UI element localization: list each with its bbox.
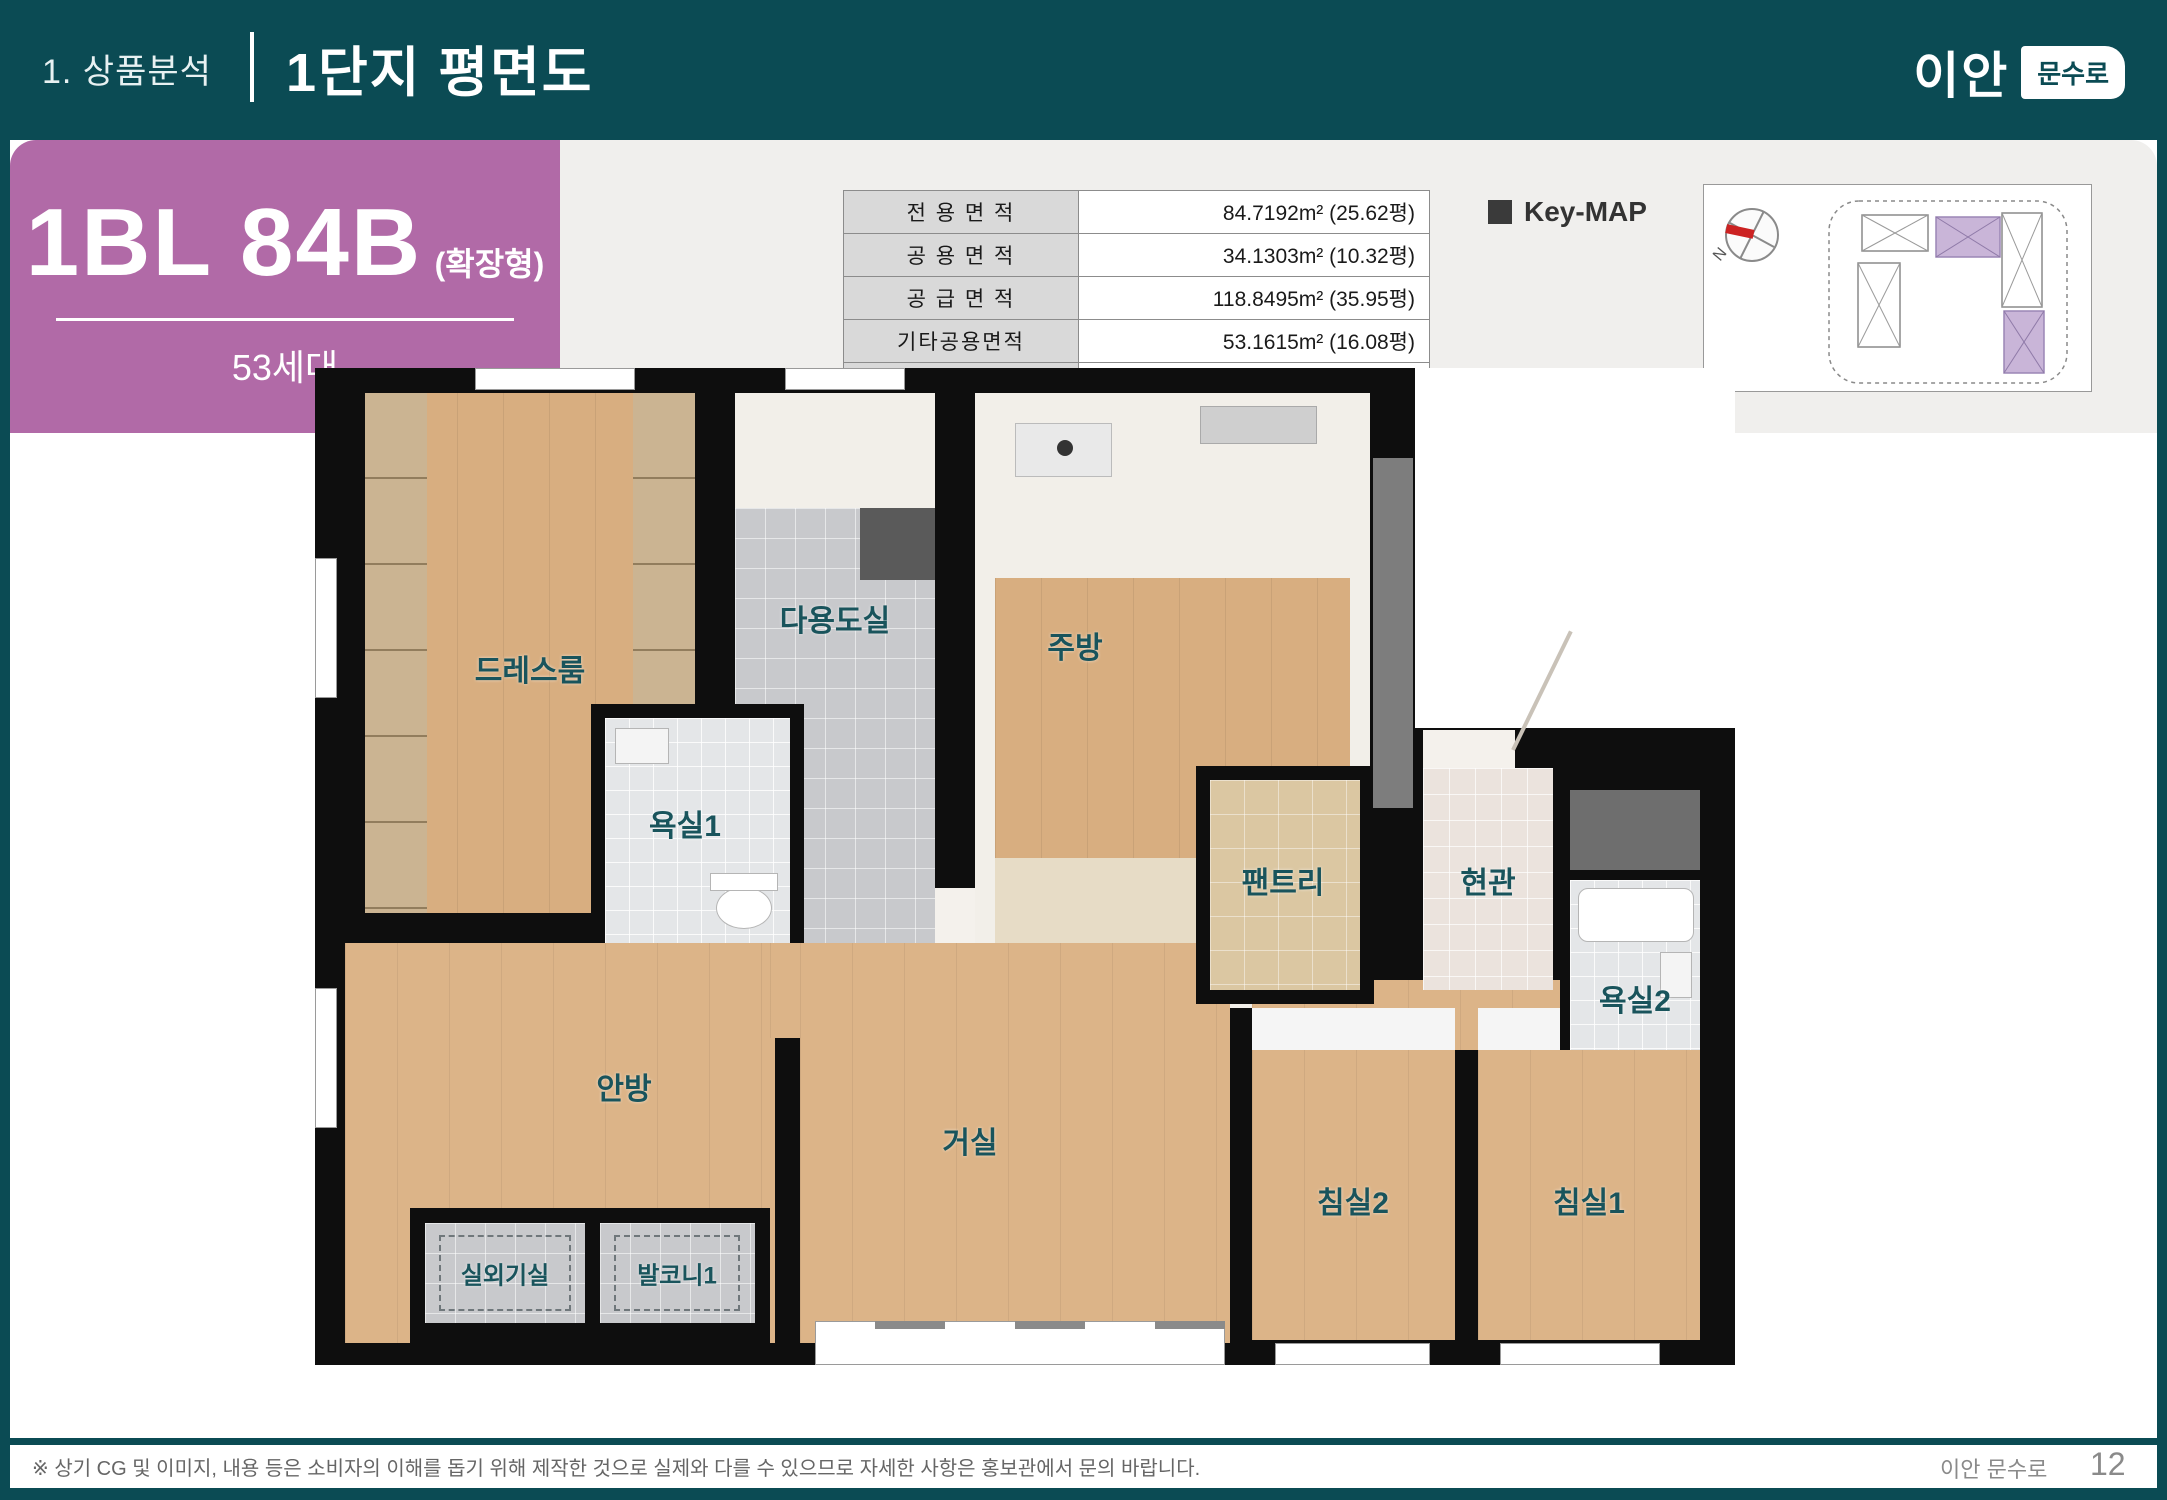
footer-project-name: 이안 문수로 xyxy=(1940,1452,2047,1484)
area-row-value: 34.1303m² (10.32평) xyxy=(1079,234,1430,277)
header-divider xyxy=(250,32,254,102)
window-mullion xyxy=(1155,1321,1225,1329)
unit-code: 1BL 84B xyxy=(26,189,422,296)
label-dressroom: 드레스룸 xyxy=(475,646,585,690)
label-bed2: 침실2 xyxy=(1317,1178,1389,1222)
section-label: 1. 상품분석 xyxy=(42,44,212,93)
window-mullion xyxy=(875,1321,945,1329)
label-bath1: 욕실1 xyxy=(649,801,721,845)
kitchen-stove xyxy=(1200,406,1317,444)
frame-right-strip xyxy=(2157,140,2167,1500)
keymap-heading: Key-MAP xyxy=(1488,196,1647,228)
frame-left-strip xyxy=(0,140,10,1500)
room-living xyxy=(800,943,1230,1343)
area-row-value: 53.1615m² (16.08평) xyxy=(1079,320,1430,363)
bed1-closet xyxy=(1478,1008,1560,1050)
table-row: 전 용 면 적 84.7192m² (25.62평) xyxy=(844,191,1430,234)
frame-bottom-strip xyxy=(0,1488,2167,1500)
label-balcony1: 발코니1 xyxy=(637,1256,717,1291)
bath1-sink xyxy=(615,728,669,764)
label-ac-room: 실외기실 xyxy=(461,1256,549,1291)
kitchen-faucet xyxy=(1057,440,1073,456)
area-row-value: 84.7192m² (25.62평) xyxy=(1079,191,1430,234)
floorplan-outside-area xyxy=(1415,368,1735,728)
table-row: 공 용 면 적 34.1303m² (10.32평) xyxy=(844,234,1430,277)
footer-disclaimer: ※ 상기 CG 및 이미지, 내용 등은 소비자의 이해를 돕기 위해 제작한 … xyxy=(32,1452,1200,1481)
bath2-tub xyxy=(1578,888,1694,942)
window-bed1 xyxy=(1500,1343,1660,1365)
label-kitchen: 주방 xyxy=(1047,623,1102,667)
window-top-1 xyxy=(475,368,635,390)
label-bath2: 욕실2 xyxy=(1599,976,1671,1020)
logo-badge: 문수로 xyxy=(2021,46,2125,99)
window-bed2 xyxy=(1275,1343,1430,1365)
slide-header: 1. 상품분석 1단지 평면도 이안 문수로 xyxy=(0,0,2167,140)
keymap-title: Key-MAP xyxy=(1524,196,1647,228)
entrance-door-gap xyxy=(1423,730,1515,770)
footer-divider-line xyxy=(10,1438,2157,1445)
unit-type-suffix: (확장형) xyxy=(435,246,545,282)
window-mullion xyxy=(1015,1321,1085,1329)
window-left-2 xyxy=(315,988,337,1128)
logo: 이안 문수로 xyxy=(1913,36,2125,108)
bath1-toilet-tank xyxy=(710,873,778,891)
bed2-closet xyxy=(1252,1008,1455,1050)
bath2-shaft xyxy=(1570,790,1700,870)
area-row-value: 118.8495m² (35.95평) xyxy=(1079,277,1430,320)
keymap-panel: N xyxy=(1703,184,2092,392)
utility-counter xyxy=(735,393,935,508)
label-living: 거실 xyxy=(942,1118,997,1162)
table-row: 기타공용면적 53.1615m² (16.08평) xyxy=(844,320,1430,363)
page-title: 1단지 평면도 xyxy=(286,28,593,107)
duct-shaft xyxy=(1373,458,1413,808)
window-left-1 xyxy=(315,558,337,698)
logo-brand: 이안 xyxy=(1913,36,2009,108)
floorplan: 드레스룸 다용도실 주방 욕실1 팬트리 현관 욕실2 안방 거실 침실2 침실… xyxy=(315,368,1735,1365)
utility-appliance xyxy=(860,508,935,580)
area-row-label: 전 용 면 적 xyxy=(844,191,1079,234)
area-row-label: 기타공용면적 xyxy=(844,320,1079,363)
unit-card-divider xyxy=(56,318,514,321)
wardrobe-left xyxy=(365,393,427,913)
label-entrance: 현관 xyxy=(1460,858,1515,902)
svg-text:N: N xyxy=(1710,245,1730,265)
label-pantry: 팬트리 xyxy=(1242,858,1325,902)
label-utility: 다용도실 xyxy=(780,596,890,640)
square-bullet-icon xyxy=(1488,200,1512,224)
compass-icon: N xyxy=(1710,209,1778,264)
label-bed1: 침실1 xyxy=(1553,1178,1625,1222)
window-top-2 xyxy=(785,368,905,390)
area-row-label: 공 용 면 적 xyxy=(844,234,1079,277)
keymap-drawing: N xyxy=(1704,185,2091,391)
table-row: 공 급 면 적 118.8495m² (35.95평) xyxy=(844,277,1430,320)
bath1-toilet xyxy=(716,887,772,929)
page-number: 12 xyxy=(2090,1446,2126,1483)
area-row-label: 공 급 면 적 xyxy=(844,277,1079,320)
label-master: 안방 xyxy=(596,1064,651,1108)
